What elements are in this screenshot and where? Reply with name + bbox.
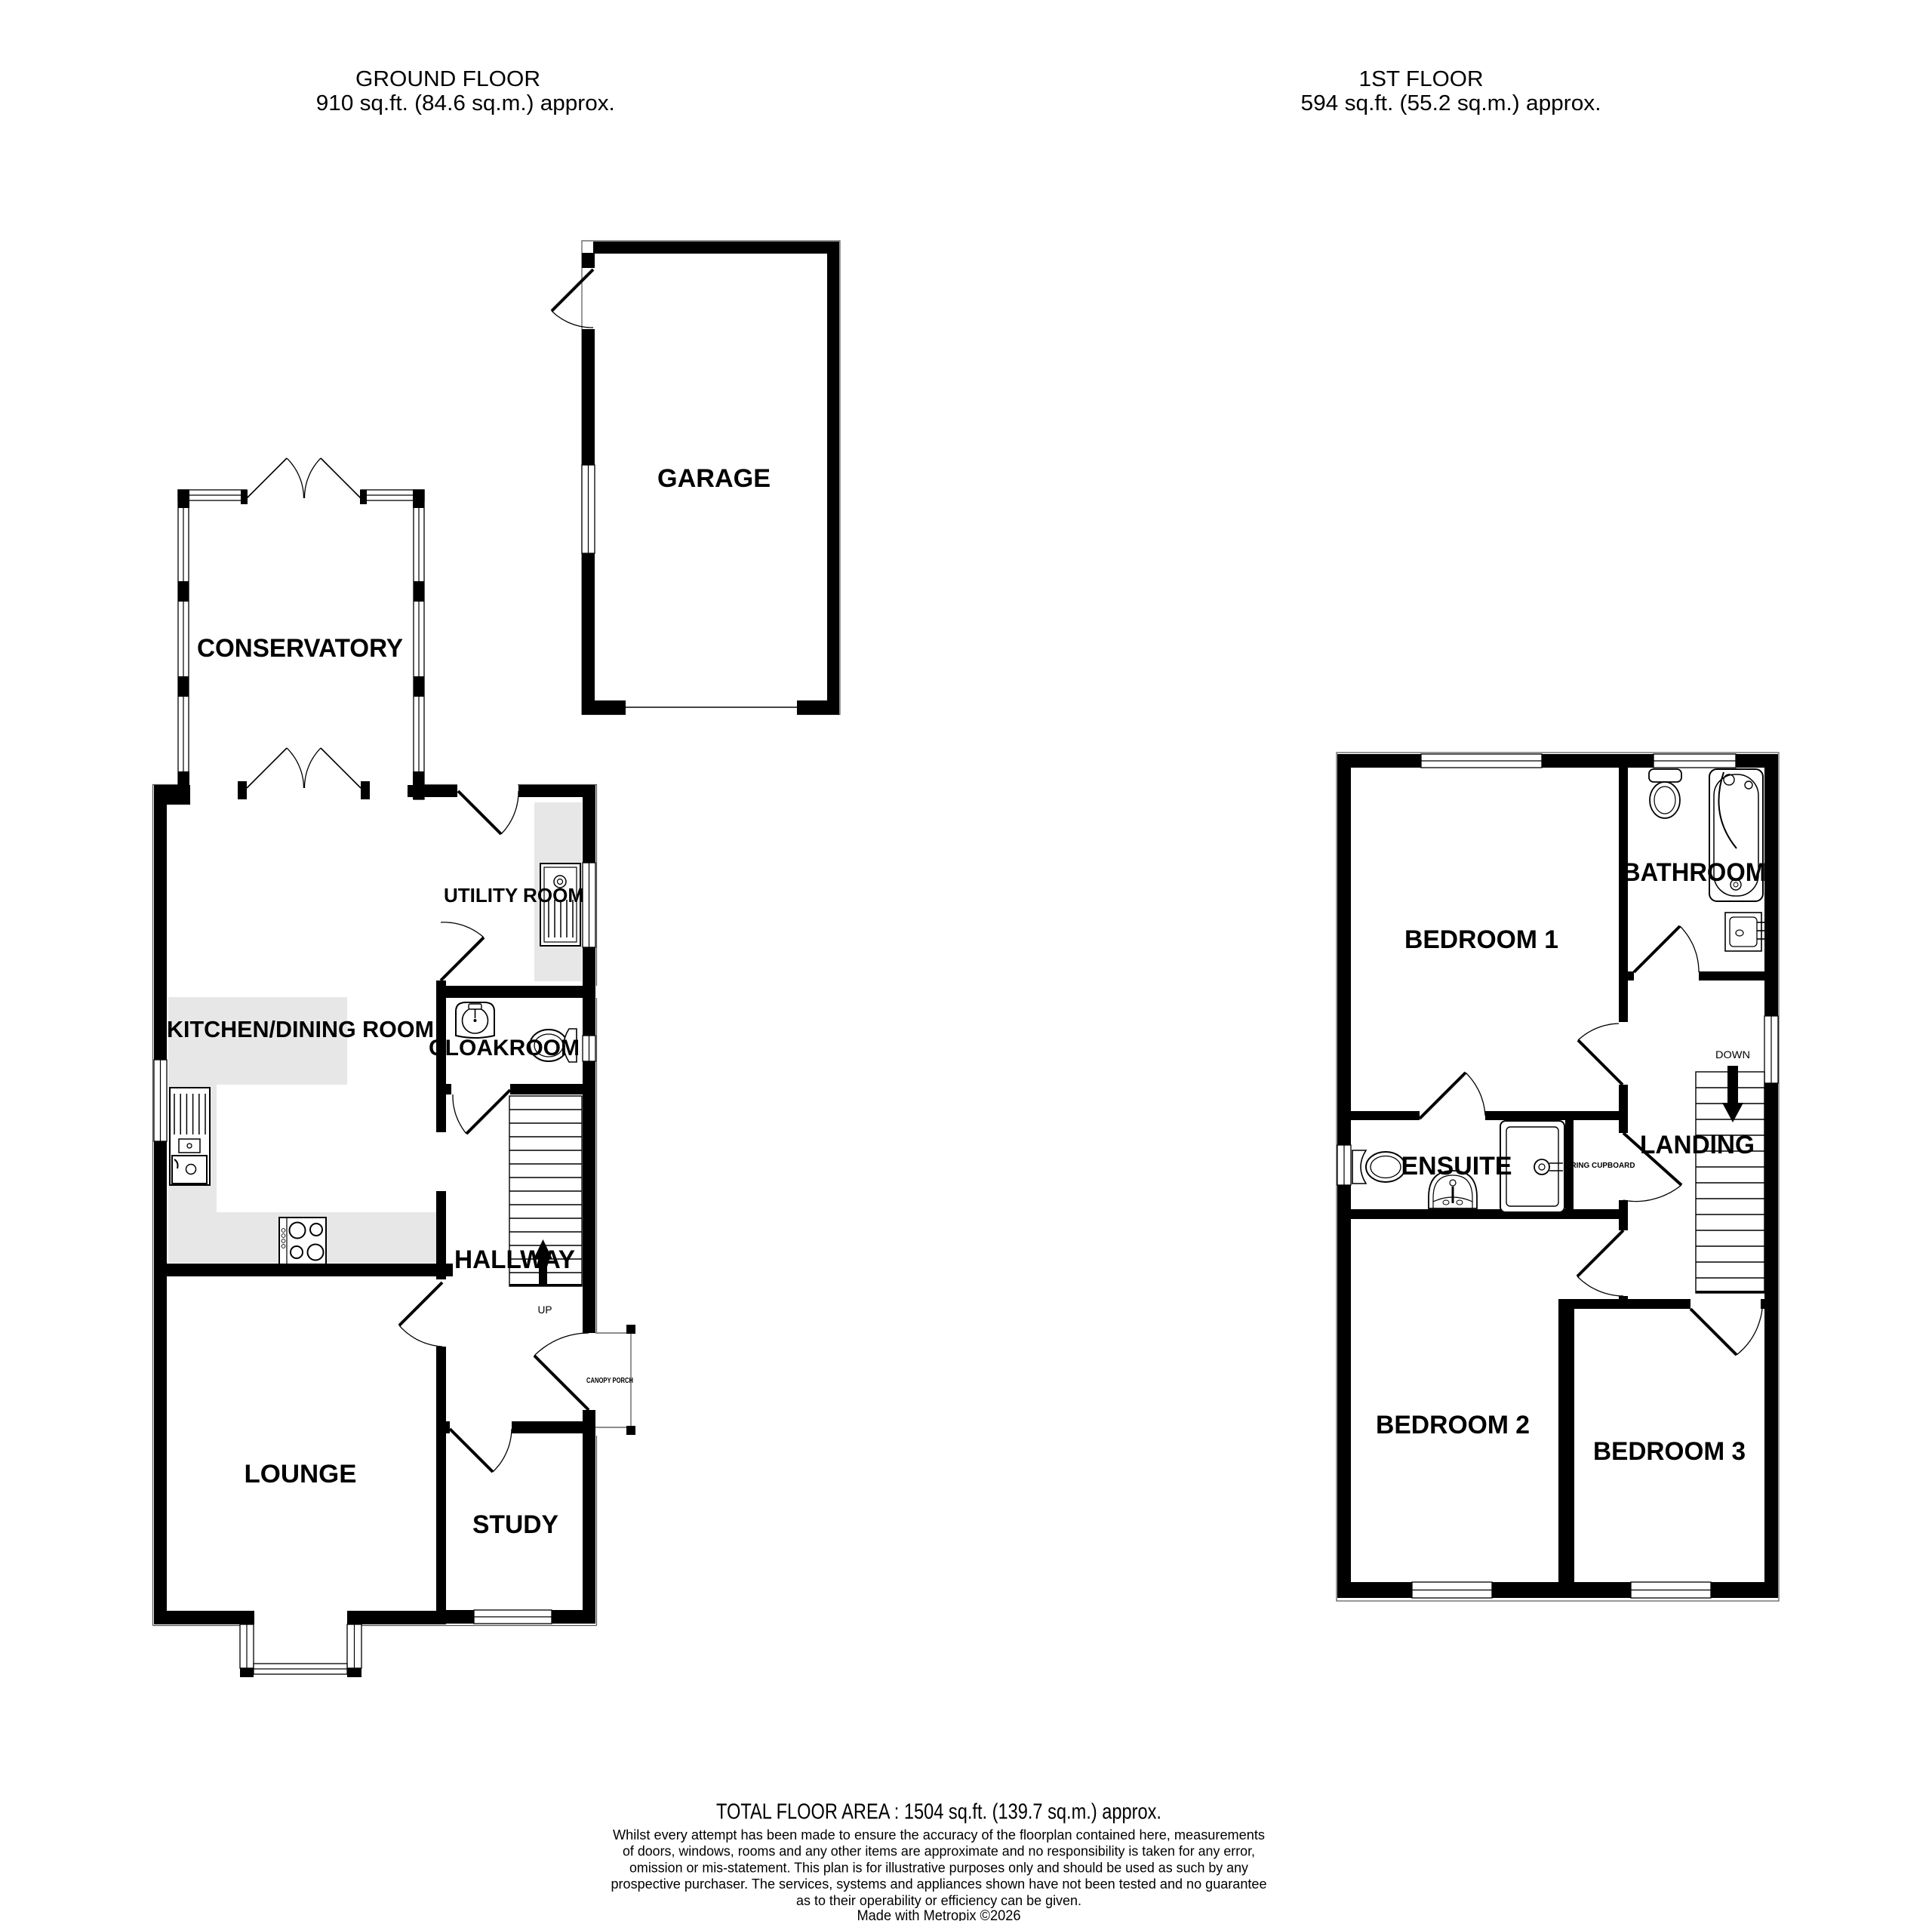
svg-text:LANDING: LANDING (1640, 1131, 1755, 1159)
svg-text:STUDY: STUDY (472, 1510, 558, 1539)
svg-text:HALLWAY: HALLWAY (454, 1245, 575, 1274)
svg-text:KITCHEN/DINING ROOM: KITCHEN/DINING ROOM (167, 1016, 434, 1042)
svg-text:prospective purchaser. The ser: prospective purchaser. The services, sys… (611, 1876, 1267, 1892)
svg-text:BEDROOM 1: BEDROOM 1 (1404, 925, 1558, 954)
svg-text:CLOAKROOM: CLOAKROOM (429, 1036, 580, 1061)
svg-text:910 sq.ft. (84.6 sq.m.) approx: 910 sq.ft. (84.6 sq.m.) approx. (316, 91, 615, 115)
svg-text:omission or mis-statement. Thi: omission or mis-statement. This plan is … (629, 1859, 1249, 1875)
svg-text:Made with Metropix ©2026: Made with Metropix ©2026 (857, 1908, 1021, 1921)
svg-text:of doors, windows, rooms and a: of doors, windows, rooms and any other i… (623, 1843, 1255, 1859)
svg-text:AIRING CUPBOARD: AIRING CUPBOARD (1564, 1162, 1635, 1170)
svg-text:GARAGE: GARAGE (657, 464, 771, 493)
svg-text:UP: UP (538, 1304, 552, 1316)
svg-text:as to their operability or eff: as to their operability or efficiency ca… (796, 1892, 1081, 1908)
svg-text:BEDROOM 3: BEDROOM 3 (1593, 1437, 1746, 1466)
svg-text:Whilst every attempt has been: Whilst every attempt has been made to en… (613, 1827, 1265, 1842)
svg-text:UTILITY ROOM: UTILITY ROOM (444, 884, 584, 907)
svg-text:BATHROOM: BATHROOM (1623, 858, 1766, 887)
svg-text:1ST FLOOR: 1ST FLOOR (1359, 67, 1484, 91)
svg-text:LOUNGE: LOUNGE (245, 1460, 357, 1488)
svg-text:ENSUITE: ENSUITE (1401, 1152, 1512, 1181)
svg-text:CONSERVATORY: CONSERVATORY (197, 634, 403, 663)
svg-text:594 sq.ft. (55.2 sq.m.) approx: 594 sq.ft. (55.2 sq.m.) approx. (1301, 91, 1601, 115)
svg-text:TOTAL FLOOR AREA : 1504 sq.ft.: TOTAL FLOOR AREA : 1504 sq.ft. (139.7 sq… (716, 1800, 1161, 1824)
svg-text:CANOPY PORCH: CANOPY PORCH (586, 1377, 633, 1385)
svg-text:GROUND FLOOR: GROUND FLOOR (355, 67, 540, 91)
svg-text:BEDROOM 2: BEDROOM 2 (1376, 1411, 1530, 1439)
svg-text:DOWN: DOWN (1715, 1048, 1750, 1061)
